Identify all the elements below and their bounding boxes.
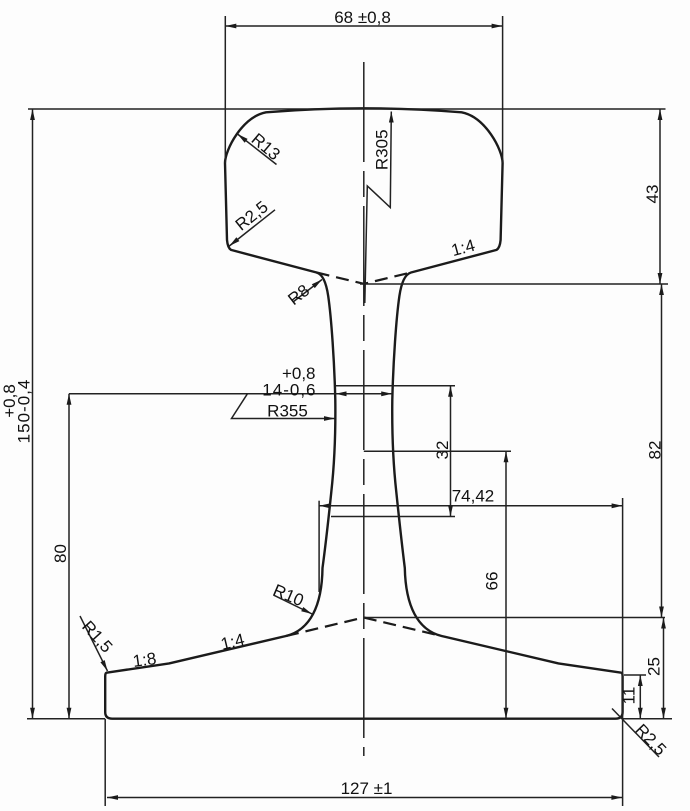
svg-text:82: 82 xyxy=(645,441,664,460)
svg-text:R355: R355 xyxy=(267,402,308,421)
svg-text:R13: R13 xyxy=(248,130,284,165)
svg-text:+0,8: +0,8 xyxy=(0,384,19,418)
svg-text:R2,5: R2,5 xyxy=(631,720,670,759)
svg-text:14-0,6: 14-0,6 xyxy=(262,381,316,400)
svg-text:1:4: 1:4 xyxy=(219,630,246,654)
svg-text:R8: R8 xyxy=(284,281,313,309)
svg-text:74,42: 74,42 xyxy=(452,487,495,506)
svg-text:32: 32 xyxy=(433,441,452,460)
svg-text:80: 80 xyxy=(51,544,70,563)
svg-text:68 ±0,8: 68 ±0,8 xyxy=(334,8,391,27)
svg-text:R10: R10 xyxy=(270,581,306,611)
svg-text:1:8: 1:8 xyxy=(132,649,158,671)
svg-text:127 ±1: 127 ±1 xyxy=(341,779,393,798)
svg-text:25: 25 xyxy=(644,657,663,676)
svg-text:66: 66 xyxy=(482,572,501,591)
svg-text:43: 43 xyxy=(643,185,662,204)
svg-text:R305: R305 xyxy=(372,129,391,170)
svg-text:11: 11 xyxy=(619,687,638,705)
